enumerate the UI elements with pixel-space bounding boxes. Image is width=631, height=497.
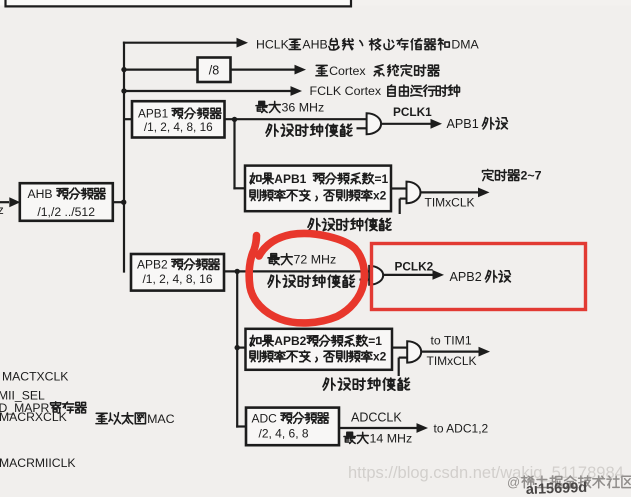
- svg-text:MACRMIICLK: MACRMIICLK: [0, 456, 76, 470]
- svg-text:APB2: APB2: [274, 334, 306, 348]
- svg-text:FCLK Cortex: FCLK Cortex: [310, 84, 382, 98]
- svg-text:PCLK1: PCLK1: [393, 105, 432, 119]
- svg-text:2~7: 2~7: [521, 169, 542, 183]
- svg-text:x2: x2: [373, 189, 387, 203]
- svg-text:x2: x2: [373, 350, 387, 364]
- svg-text:TIMxCLK: TIMxCLK: [425, 196, 475, 210]
- svg-text:36 MHz: 36 MHz: [282, 100, 325, 114]
- svg-text:/1,/2 ../512: /1,/2 ../512: [37, 205, 95, 219]
- svg-text:APB2: APB2: [450, 270, 482, 284]
- svg-text:AHB: AHB: [302, 38, 327, 52]
- svg-text:AHB: AHB: [28, 187, 53, 201]
- svg-text:DMA: DMA: [451, 38, 479, 52]
- svg-text:@: @: [507, 475, 520, 490]
- svg-text:ai15699d: ai15699d: [526, 480, 588, 497]
- svg-text:APB1: APB1: [274, 172, 306, 186]
- svg-text:APB1: APB1: [447, 117, 479, 131]
- svg-text:ADC: ADC: [252, 411, 278, 425]
- svg-text:APB2: APB2: [137, 258, 168, 272]
- svg-text:MACRXCLK: MACRXCLK: [0, 410, 67, 424]
- svg-text:=1: =1: [375, 172, 389, 186]
- svg-text:z: z: [0, 203, 4, 217]
- svg-text:/8: /8: [209, 64, 219, 78]
- svg-text:MACTXCLK: MACTXCLK: [2, 370, 68, 384]
- svg-text:72 MHz: 72 MHz: [294, 253, 337, 267]
- svg-text:ADCCLK: ADCCLK: [351, 411, 402, 425]
- svg-text:HCLK: HCLK: [256, 38, 290, 52]
- svg-text:/1, 2, 4, 8, 16: /1, 2, 4, 8, 16: [142, 272, 212, 286]
- svg-text:to TIM1: to TIM1: [431, 333, 472, 347]
- svg-text:to ADC1,2: to ADC1,2: [434, 421, 489, 435]
- svg-text:TIMxCLK: TIMxCLK: [427, 354, 477, 368]
- svg-text:/2, 4, 6, 8: /2, 4, 6, 8: [259, 427, 309, 441]
- svg-text:/1, 2, 4, 8, 16: /1, 2, 4, 8, 16: [144, 120, 213, 134]
- svg-text:14 MHz: 14 MHz: [370, 431, 413, 445]
- svg-text:APB1: APB1: [138, 107, 168, 121]
- svg-text:=1: =1: [368, 334, 382, 348]
- svg-text:PCLK2: PCLK2: [395, 259, 434, 273]
- svg-text:MAC: MAC: [147, 412, 175, 426]
- svg-text:Cortex: Cortex: [329, 64, 366, 78]
